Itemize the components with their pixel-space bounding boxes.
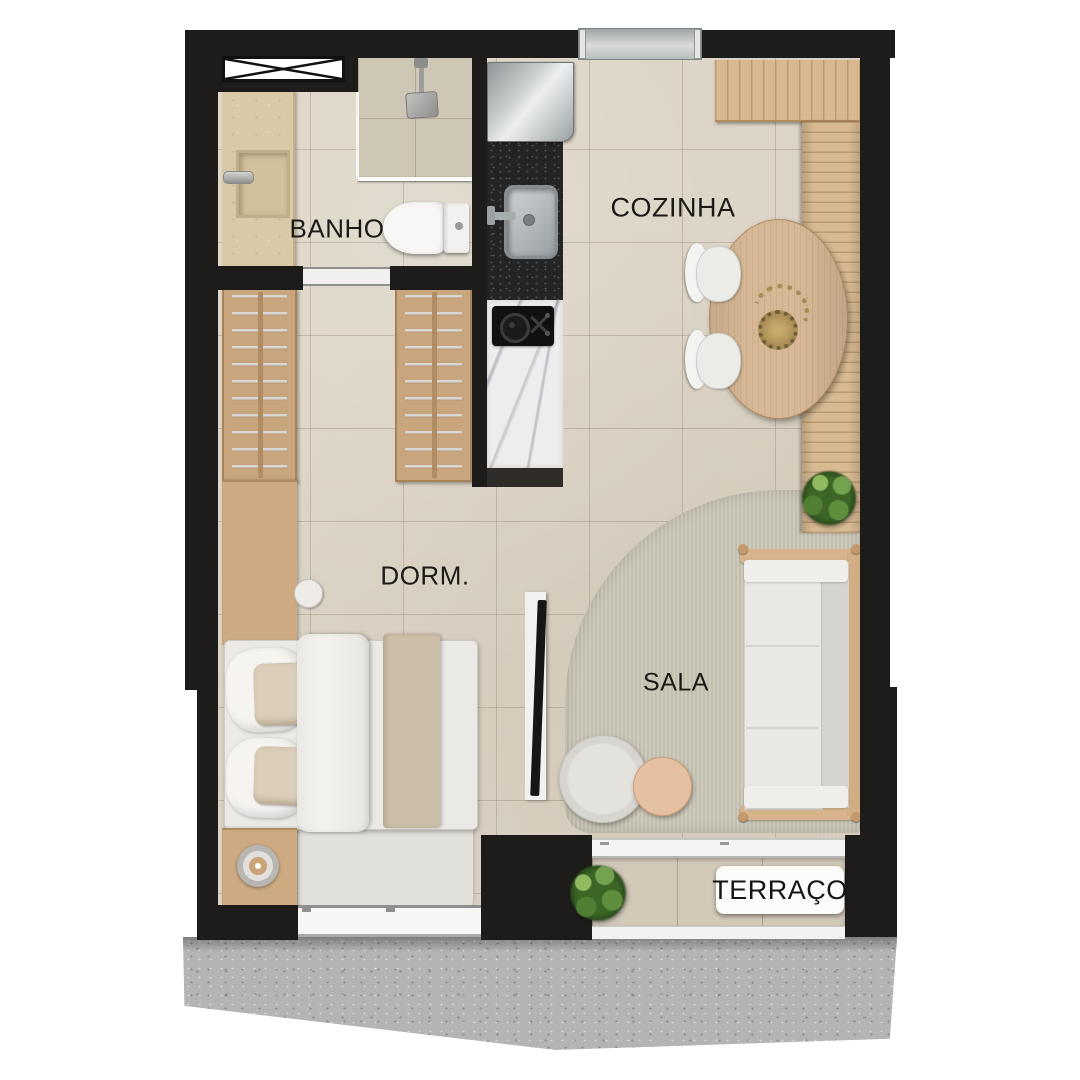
bedroom-stool bbox=[294, 579, 323, 608]
sofa-armrest bbox=[744, 786, 848, 808]
shower-glass-panel bbox=[356, 92, 359, 181]
floor-plan: BANHO COZINHA DORM. SALA TERRAÇO bbox=[0, 0, 1080, 1080]
shower-valve bbox=[414, 57, 428, 68]
wardrobe-left bbox=[222, 288, 297, 482]
wall bbox=[472, 30, 487, 487]
room-label-terraco: TERRAÇO bbox=[712, 875, 848, 906]
sofa-cushion-seam bbox=[746, 645, 819, 647]
shower-glass-panel bbox=[358, 177, 472, 181]
kitchen-counter-end bbox=[487, 468, 563, 487]
door-handle bbox=[600, 842, 609, 845]
shower-head-icon bbox=[405, 91, 439, 119]
kitchen-window bbox=[578, 28, 702, 60]
bathroom-sink bbox=[236, 150, 290, 218]
wall bbox=[845, 835, 897, 937]
wall bbox=[197, 690, 218, 940]
bed-runner-blanket bbox=[383, 634, 440, 828]
fridge bbox=[487, 62, 574, 142]
cooktop-knob bbox=[545, 313, 550, 318]
terrace-label-plate: TERRAÇO bbox=[716, 866, 844, 914]
dining-chair bbox=[696, 246, 741, 302]
cooktop-knob bbox=[545, 331, 550, 336]
sofa-armrest bbox=[744, 560, 848, 582]
duvet bbox=[297, 634, 369, 832]
bathroom-faucet bbox=[223, 171, 254, 184]
door-handle bbox=[720, 842, 729, 845]
wardrobe-divider bbox=[258, 292, 263, 478]
room-label-cozinha: COZINHA bbox=[611, 193, 736, 224]
wood-bench bbox=[715, 60, 860, 122]
wardrobe-divider bbox=[432, 292, 437, 478]
sink-drain bbox=[523, 214, 535, 226]
room-label-banho: BANHO bbox=[290, 214, 385, 245]
wardrobe-right bbox=[395, 288, 472, 482]
sofa-leg bbox=[738, 544, 748, 554]
dresser-counter bbox=[222, 480, 297, 645]
sofa-backrest bbox=[821, 562, 849, 808]
window-frame bbox=[386, 908, 395, 912]
wall bbox=[197, 905, 298, 940]
wall bbox=[358, 30, 580, 58]
dining-chair bbox=[696, 333, 741, 389]
sofa-seat bbox=[744, 562, 823, 810]
burner-icon bbox=[500, 313, 530, 343]
bedroom-window bbox=[298, 905, 481, 937]
shaft-duct-icon bbox=[222, 56, 345, 82]
kitchen-faucet bbox=[487, 206, 495, 225]
toilet-flush-button bbox=[455, 222, 463, 230]
wall bbox=[390, 266, 487, 290]
burner-icon bbox=[509, 322, 515, 328]
wall bbox=[860, 30, 890, 687]
wall bbox=[185, 30, 218, 690]
shower-area bbox=[358, 57, 472, 182]
concrete-apron bbox=[183, 937, 897, 1050]
sliding-door bbox=[592, 838, 845, 858]
room-label-dorm: DORM. bbox=[380, 561, 469, 592]
table-centerpiece bbox=[758, 310, 798, 350]
coffee-table-small bbox=[633, 757, 692, 816]
sofa-leg bbox=[738, 812, 748, 822]
window-frame bbox=[302, 908, 311, 912]
terrace-edge bbox=[592, 926, 845, 939]
toilet bbox=[383, 202, 447, 254]
room-label-sala: SALA bbox=[643, 669, 709, 698]
bathroom-door-sill bbox=[298, 267, 392, 286]
sofa-cushion-seam bbox=[746, 727, 819, 729]
wall bbox=[860, 687, 897, 835]
duct-x-icon bbox=[225, 59, 342, 79]
wall bbox=[185, 266, 303, 290]
table-lamp bbox=[255, 863, 261, 869]
